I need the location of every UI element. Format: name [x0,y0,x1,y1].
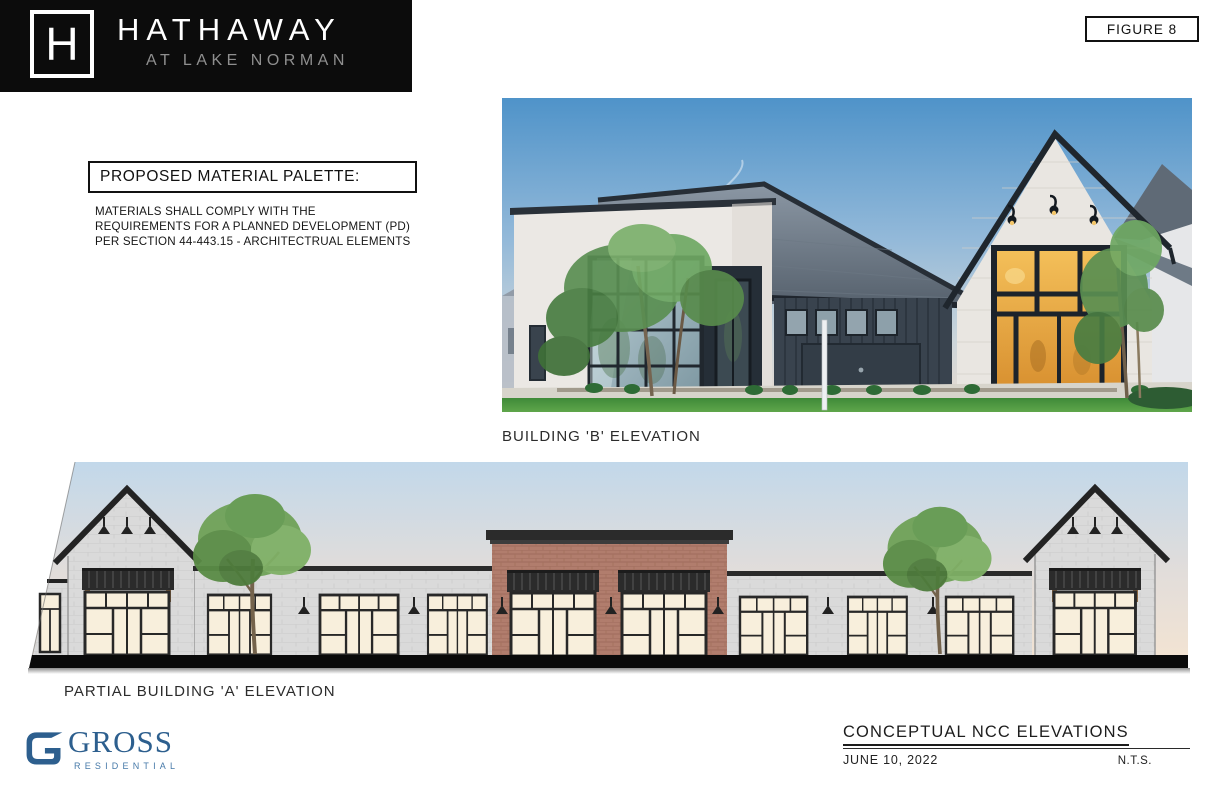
material-palette-line: PER SECTION 44-443.15 - ARCHITECTRUAL EL… [95,235,410,250]
material-palette-line: REQUIREMENTS FOR A PLANNED DEVELOPMENT (… [95,220,410,235]
gross-g-icon [22,726,66,770]
sheet-title: CONCEPTUAL NCC ELEVATIONS [843,723,1129,746]
title-block-rule [843,748,1190,749]
material-palette-heading: PROPOSED MATERIAL PALETTE: [88,161,417,193]
building-b-caption: BUILDING 'B' ELEVATION [502,428,701,445]
ground-band [29,655,1188,668]
hathaway-monogram-icon: H [30,10,94,78]
figure-label: FIGURE 8 [1085,16,1199,42]
sheet-date: JUNE 10, 2022 [843,753,938,767]
brand-banner: H HATHAWAY AT LAKE NORMAN [0,0,412,92]
building-a-caption: PARTIAL BUILDING 'A' ELEVATION [64,683,336,700]
ground-shadow [28,668,1190,674]
sign-pole [822,320,827,410]
monogram-letter: H [45,21,78,67]
right-flat-section [727,571,1032,655]
gross-residential-logo: GROSS RESIDENTIAL [22,724,222,776]
brand-title: HATHAWAY [117,12,342,48]
material-palette-line: MATERIALS SHALL COMPLY WITH THE [95,205,410,220]
building-a-elevation [28,462,1190,674]
presentation-sheet: H HATHAWAY AT LAKE NORMAN FIGURE 8 PROPO… [0,0,1224,792]
building-b-photo [502,98,1192,412]
material-palette-body: MATERIALS SHALL COMPLY WITH THE REQUIREM… [95,205,410,249]
sheet-scale: N.T.S. [1118,755,1152,767]
barn-section [774,298,952,396]
brand-subtitle: AT LAKE NORMAN [146,52,349,70]
gross-wordmark: GROSS [68,724,173,760]
title-block: CONCEPTUAL NCC ELEVATIONS JUNE 10, 2022 … [843,723,1192,767]
brick-volume [486,530,733,656]
gross-wordmark-sub: RESIDENTIAL [74,761,179,771]
